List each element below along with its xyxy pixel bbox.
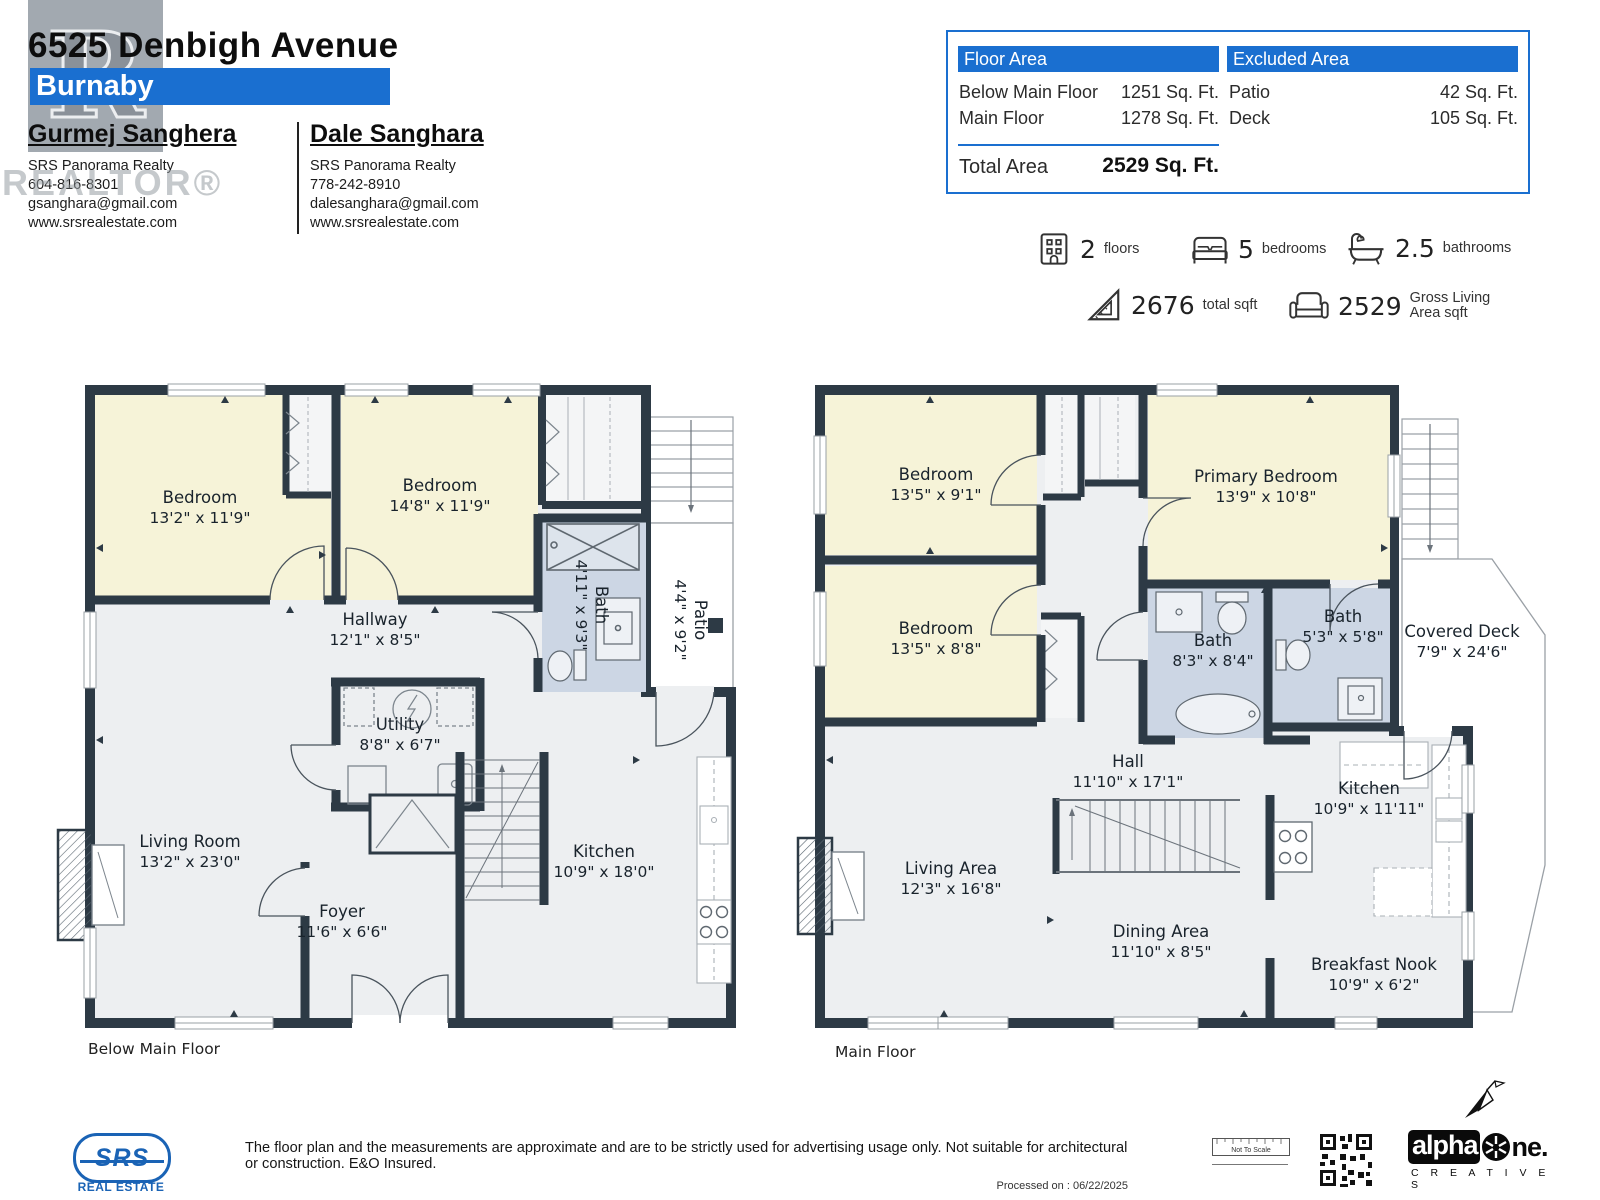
room-label-kitchen: Kitchen10'9" x 11'11": [1314, 778, 1425, 820]
agent-name: Gurmej Sanghera: [28, 120, 293, 149]
stat-total-sqft: 2676 total sqft: [1085, 286, 1257, 324]
agent-divider: [297, 122, 299, 234]
room-label-foyer: Foyer11'6" x 6'6": [296, 901, 387, 943]
room-label-covered-deck: Covered Deck7'9" x 24'6": [1404, 621, 1519, 663]
room-label-patio: Patio4'4" x 9'2": [669, 579, 711, 660]
room-label-hallway: Hallway12'1" x 8'5": [329, 609, 420, 651]
bathtub-icon: [1345, 228, 1387, 268]
floorplan-main: Bedroom13'5" x 9'1" Primary Bedroom13'9"…: [790, 375, 1560, 1065]
room-label-primary-bedroom: Primary Bedroom13'9" x 10'8": [1194, 466, 1338, 508]
ruler-ticks-icon: [1213, 1139, 1289, 1145]
excluded-row-value: 105 Sq. Ft.: [1248, 108, 1518, 129]
agent-email: gsanghara@gmail.com: [28, 195, 293, 214]
srs-logo: SRS: [73, 1133, 171, 1183]
agent-card-1: Gurmej Sanghera SRS Panorama Realty 604-…: [28, 120, 293, 233]
room-label-bath: Bath5'3" x 5'8": [1302, 606, 1383, 648]
alphaone-logo: alpha ne. C R E A T I V E S: [1408, 1130, 1558, 1191]
room-label-bedroom: Bedroom13'5" x 9'1": [890, 464, 981, 506]
stat-floors: 2 floors: [1036, 230, 1139, 268]
room-label-bedroom: Bedroom14'8" x 11'9": [390, 475, 491, 517]
total-area-value: 2529 Sq. Ft.: [958, 154, 1219, 178]
table-divider: [958, 144, 1219, 146]
room-label-dining-area: Dining Area11'10" x 8'5": [1111, 921, 1212, 963]
ruler-triangle-icon: [1085, 286, 1123, 324]
room-label-kitchen: Kitchen10'9" x 18'0": [554, 841, 655, 883]
not-to-scale-ruler: Not To Scale: [1212, 1138, 1290, 1165]
agent-website: www.srsrealestate.com: [28, 214, 293, 233]
room-label-bath: Bath4'11" x 9'3": [570, 559, 612, 650]
room-label-breakfast-nook: Breakfast Nook10'9" x 6'2": [1311, 954, 1437, 996]
city-name: Burnaby: [30, 70, 154, 103]
area-row-value: 1278 Sq. Ft.: [958, 108, 1219, 129]
processed-date: Processed on : 06/22/2025: [978, 1180, 1128, 1192]
room-label-hall: Hall11'10" x 17'1": [1073, 751, 1184, 793]
agent-website: www.srsrealestate.com: [310, 214, 550, 233]
stat-bedrooms: 5 bedrooms: [1190, 230, 1326, 268]
sofa-icon: [1288, 286, 1330, 326]
area-row-value: 1251 Sq. Ft.: [958, 82, 1219, 103]
agent-phone: 778-242-8910: [310, 176, 550, 195]
floor-area-header: Floor Area: [958, 46, 1219, 72]
room-label-bedroom: Bedroom13'5" x 8'8": [890, 618, 981, 660]
area-summary-table: Floor Area Excluded Area Below Main Floo…: [946, 30, 1530, 194]
city-banner: Burnaby: [30, 68, 390, 105]
floorplan-page: R REALTOR® 6525 Denbigh Avenue Burnaby G…: [0, 0, 1600, 1200]
compass-icon: [1455, 1078, 1507, 1124]
agent-company: SRS Panorama Realty: [28, 157, 293, 176]
building-icon: [1036, 230, 1072, 268]
floorplan-below-main: Bedroom13'2" x 11'9" Bedroom14'8" x 11'9…: [55, 375, 745, 1065]
room-label-utility: Utility8'8" x 6'7": [359, 714, 440, 756]
aperture-icon: [1481, 1132, 1511, 1162]
agent-name: Dale Sanghara: [310, 120, 550, 149]
qr-code: [1318, 1132, 1374, 1188]
agent-email: dalesanghara@gmail.com: [310, 195, 550, 214]
page-title: 6525 Denbigh Avenue: [28, 26, 399, 66]
room-label-bedroom: Bedroom13'2" x 11'9": [150, 487, 251, 529]
srs-logo-subtext: REAL ESTATE: [66, 1180, 176, 1194]
agent-phone: 604-816-8301: [28, 176, 293, 195]
room-label-living-area: Living Area12'3" x 16'8": [901, 858, 1002, 900]
agent-card-2: Dale Sanghara SRS Panorama Realty 778-24…: [310, 120, 550, 233]
agent-company: SRS Panorama Realty: [310, 157, 550, 176]
excluded-area-header: Excluded Area: [1227, 46, 1518, 72]
stat-gross-living: 2529 Gross LivingArea sqft: [1288, 286, 1490, 326]
room-label-bath: Bath8'3" x 8'4": [1172, 630, 1253, 672]
excluded-row-value: 42 Sq. Ft.: [1248, 82, 1518, 103]
room-label-living-room: Living Room13'2" x 23'0": [139, 831, 240, 873]
stat-bathrooms: 2.5 bathrooms: [1345, 228, 1511, 268]
bed-icon: [1190, 230, 1230, 268]
floor-label-main: Main Floor: [835, 1043, 916, 1061]
disclaimer-text: The floor plan and the measurements are …: [245, 1140, 1135, 1172]
floor-label-below-main: Below Main Floor: [88, 1040, 220, 1058]
